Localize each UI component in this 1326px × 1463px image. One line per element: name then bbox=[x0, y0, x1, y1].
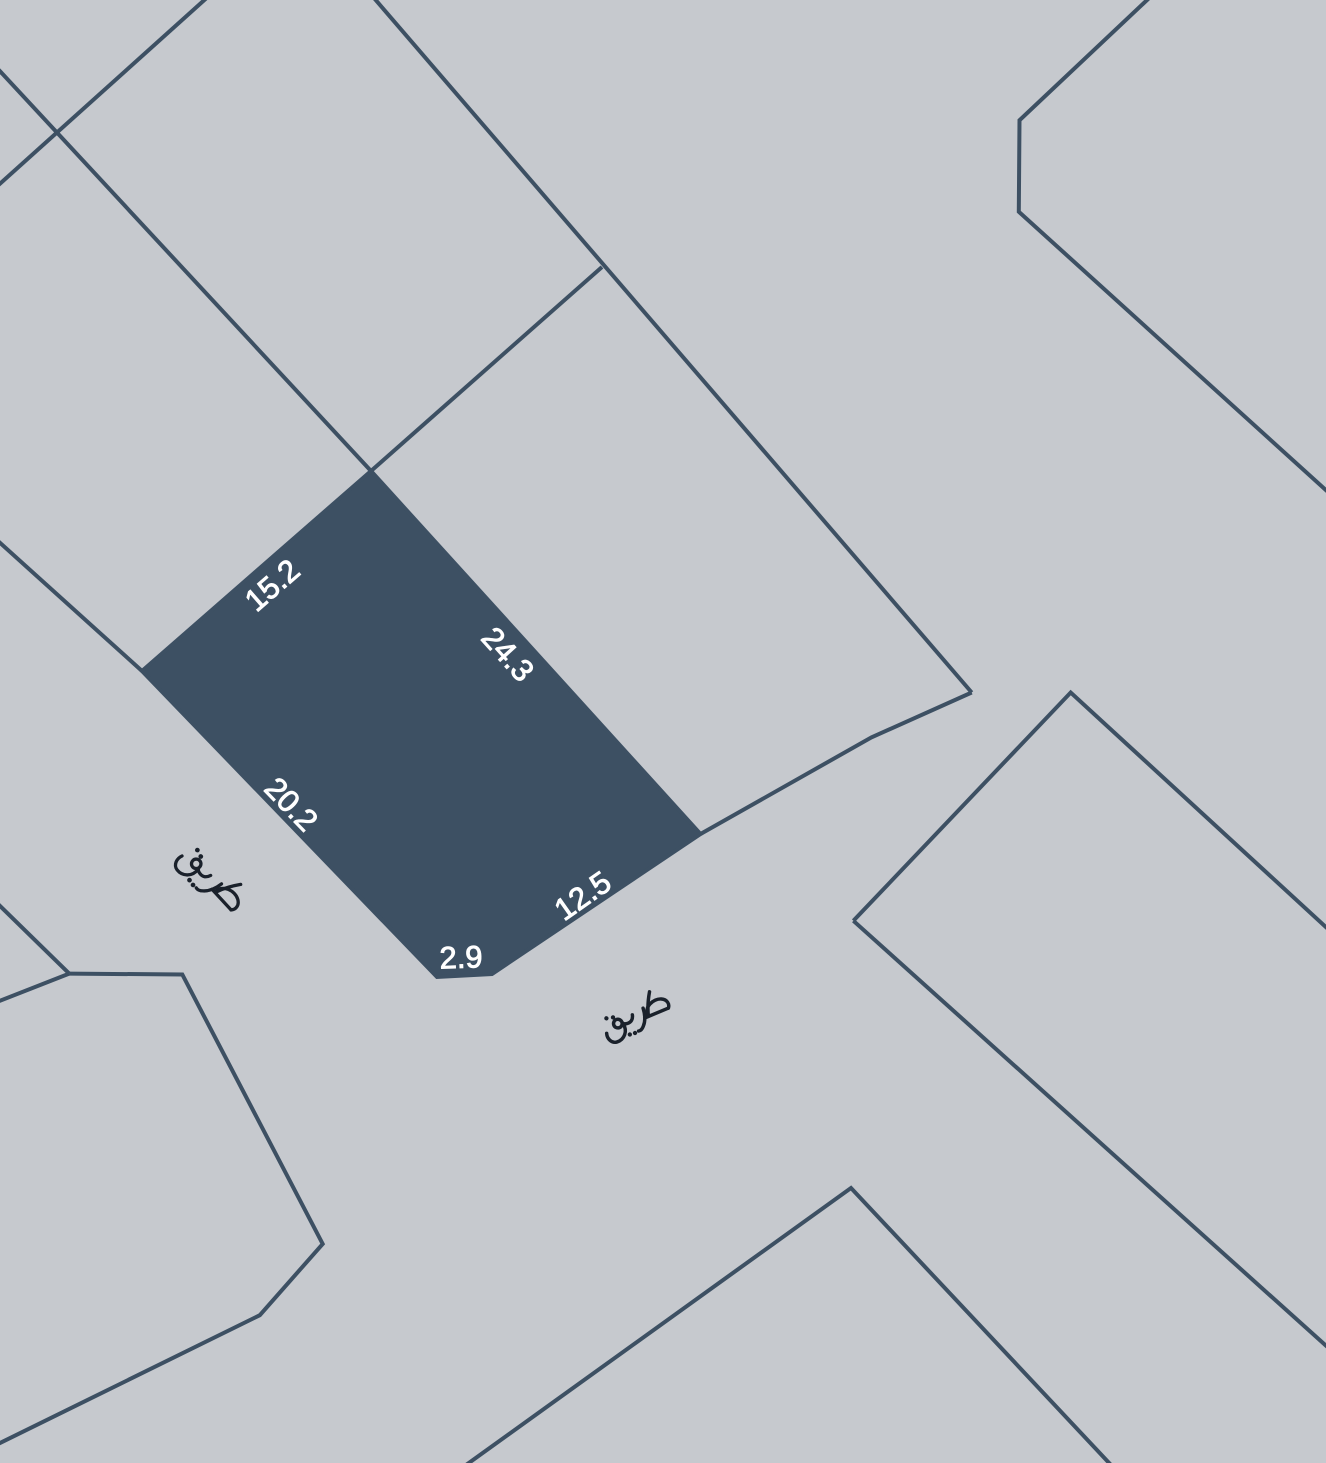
svg-text:2.9: 2.9 bbox=[439, 939, 483, 975]
